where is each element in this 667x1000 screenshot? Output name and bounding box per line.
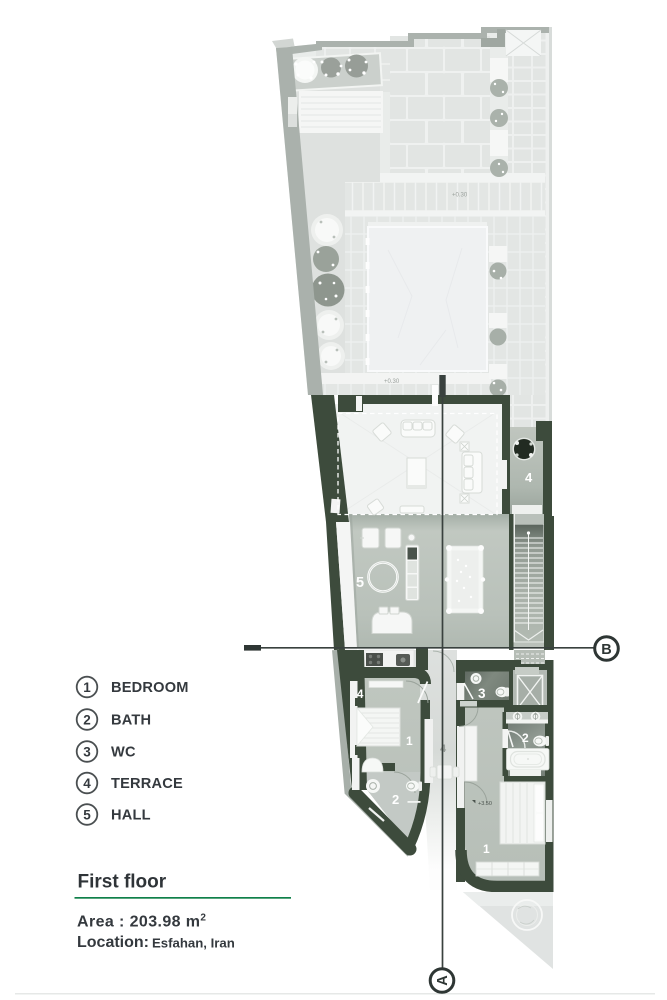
svg-text:A: A [435,975,451,986]
svg-text:+0.30: +0.30 [452,193,468,199]
svg-text:1: 1 [406,734,413,748]
svg-text:4: 4 [83,776,91,791]
svg-text:+0.30: +0.30 [384,379,400,385]
svg-text:1: 1 [83,680,91,695]
svg-text:1: 1 [483,842,490,856]
svg-text:3: 3 [478,686,486,701]
svg-text:2: 2 [83,712,91,727]
svg-text:4: 4 [357,689,364,701]
svg-text:First floor: First floor [78,872,167,893]
svg-text:5: 5 [356,575,364,591]
svg-text:B: B [601,642,611,658]
svg-text:4: 4 [440,743,447,755]
svg-text:Area : 203.98 m2: Area : 203.98 m2 [77,913,206,931]
svg-text:2: 2 [522,731,529,745]
svg-text:3: 3 [83,744,91,759]
svg-text:5: 5 [83,807,91,822]
svg-text:BEDROOM: BEDROOM [111,680,189,696]
svg-text:WC: WC [111,745,136,761]
svg-text:Location:Esfahan, Iran: Location:Esfahan, Iran [77,934,235,951]
svg-text:BATH: BATH [111,713,151,729]
svg-text:4: 4 [525,470,533,485]
svg-text:HALL: HALL [111,808,151,824]
svg-text:2: 2 [392,792,399,807]
svg-text:TERRACE: TERRACE [111,776,183,792]
svg-text:+3.50: +3.50 [478,801,492,807]
